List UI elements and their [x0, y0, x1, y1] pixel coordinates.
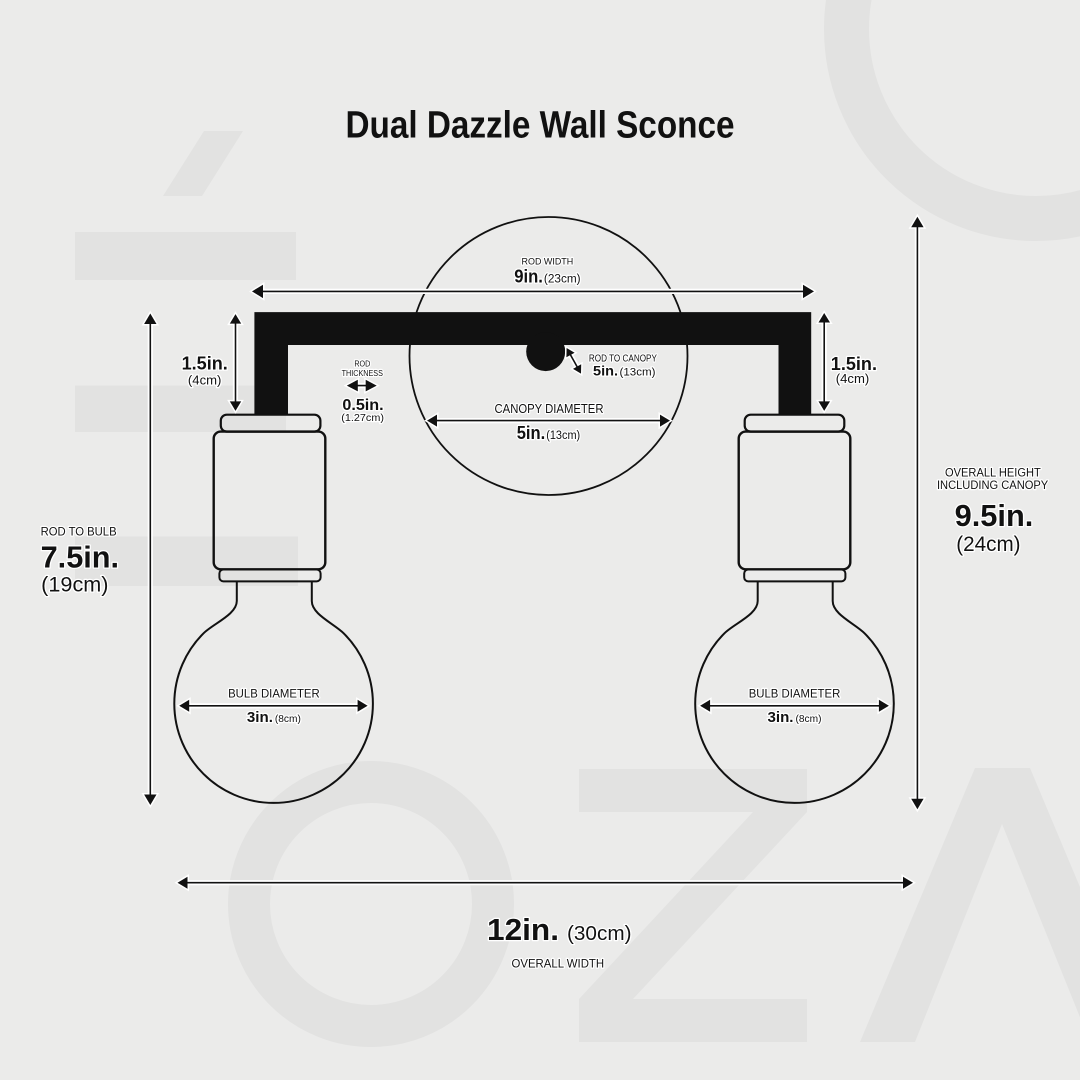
svg-text:(24cm): (24cm): [956, 533, 1020, 556]
svg-text:BULB DIAMETER: BULB DIAMETER: [749, 689, 841, 701]
svg-text:ROD: ROD: [354, 360, 370, 369]
svg-text:(19cm): (19cm): [41, 574, 108, 597]
svg-text:(4cm): (4cm): [836, 372, 870, 386]
svg-text:9.5in.: 9.5in.: [955, 498, 1034, 533]
svg-text:ROD TO BULB: ROD TO BULB: [41, 525, 117, 539]
svg-text:(1.27cm): (1.27cm): [341, 412, 384, 424]
svg-text:BULB DIAMETER: BULB DIAMETER: [228, 689, 320, 701]
svg-text:CANOPY DIAMETER: CANOPY DIAMETER: [495, 402, 604, 416]
svg-text:1.5in.: 1.5in.: [831, 354, 877, 374]
svg-text:(4cm): (4cm): [188, 373, 222, 387]
svg-text:OVERALL WIDTH: OVERALL WIDTH: [512, 957, 605, 971]
svg-text:Dual Dazzle Wall Sconce: Dual Dazzle Wall Sconce: [346, 105, 735, 147]
svg-text:1.5in.: 1.5in.: [182, 353, 228, 373]
svg-text:THICKNESS: THICKNESS: [342, 369, 383, 378]
svg-text:7.5in.: 7.5in.: [41, 540, 120, 575]
svg-text:OVERALL HEIGHT: OVERALL HEIGHT: [945, 467, 1041, 479]
svg-text:INCLUDING CANOPY: INCLUDING CANOPY: [937, 480, 1049, 492]
